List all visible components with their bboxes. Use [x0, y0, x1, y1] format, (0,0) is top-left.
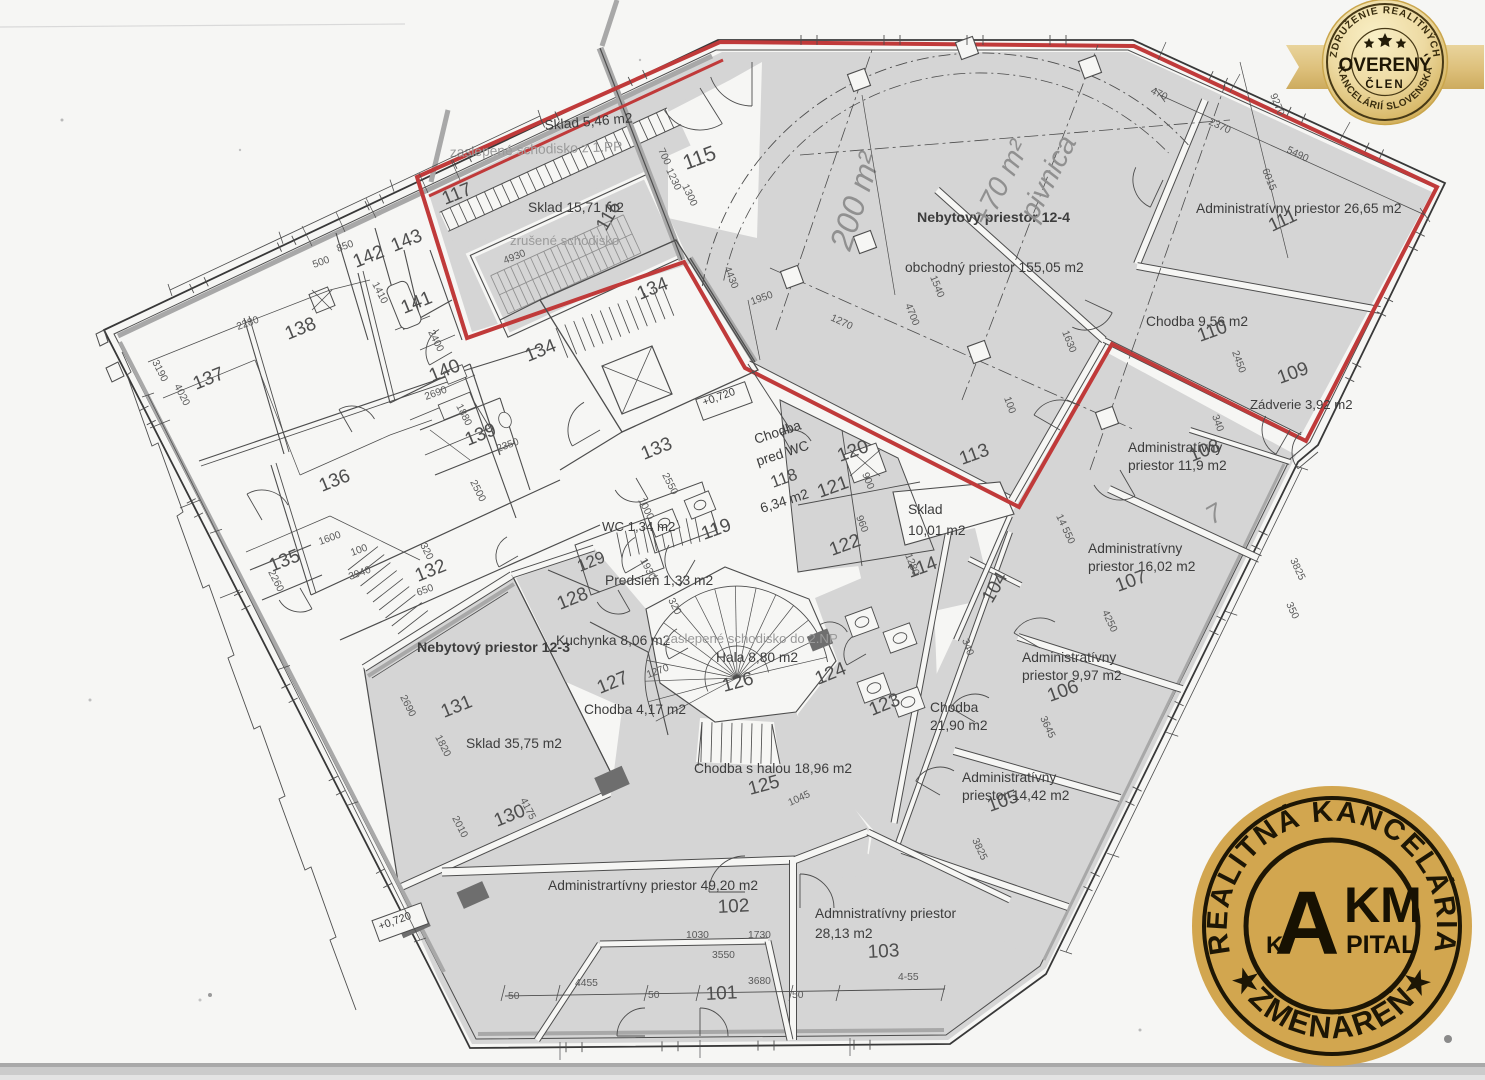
svg-text:Zádverie 3,92 m2: Zádverie 3,92 m2	[1250, 397, 1353, 412]
svg-text:OVERENÝ: OVERENÝ	[1339, 54, 1432, 76]
svg-text:4455: 4455	[575, 978, 598, 989]
svg-text:KM: KM	[1344, 877, 1422, 933]
svg-text:Nebytový priestor 12-3: Nebytový priestor 12-3	[417, 640, 570, 656]
svg-text:3680: 3680	[748, 976, 771, 987]
svg-text:50: 50	[792, 990, 804, 1001]
svg-text:50: 50	[508, 991, 520, 1002]
svg-text:zrušené schodisko: zrušené schodisko	[510, 233, 619, 248]
svg-text:50: 50	[648, 990, 660, 1001]
svg-text:Chodba: Chodba	[930, 700, 979, 715]
svg-text:WC 1,34 m2: WC 1,34 m2	[602, 519, 675, 534]
svg-text:Administratívny priestor 26,65: Administratívny priestor 26,65 m2	[1196, 201, 1402, 216]
svg-text:zaslepené schodisko do 2.NP: zaslepené schodisko do 2.NP	[664, 631, 838, 646]
svg-text:Administrartívny priestor 49,2: Administrartívny priestor 49,20 m2	[548, 878, 758, 893]
svg-text:28,13 m2: 28,13 m2	[815, 926, 873, 941]
svg-text:Administratívny: Administratívny	[1022, 650, 1116, 665]
svg-text:Sklad: Sklad	[908, 502, 943, 517]
svg-text:priestor 11,9 m2: priestor 11,9 m2	[1128, 458, 1227, 473]
svg-text:21,90 m2: 21,90 m2	[930, 718, 988, 733]
svg-text:A: A	[1275, 874, 1340, 974]
svg-text:101: 101	[705, 982, 738, 1005]
svg-text:Hala 8,80 m2: Hala 8,80 m2	[716, 650, 798, 665]
svg-text:Chodba 4,17 m2: Chodba 4,17 m2	[584, 702, 686, 717]
svg-text:PITAL: PITAL	[1346, 931, 1416, 959]
svg-text:Kuchynka 8,06 m2: Kuchynka 8,06 m2	[556, 633, 670, 648]
svg-text:Administratívny: Administratívny	[962, 770, 1056, 785]
svg-text:10,01 m2: 10,01 m2	[908, 523, 966, 538]
svg-text:3550: 3550	[712, 950, 735, 961]
svg-text:ČLEN: ČLEN	[1365, 78, 1404, 91]
svg-text:K: K	[1266, 932, 1284, 959]
svg-text:102: 102	[717, 895, 750, 918]
svg-text:103: 103	[867, 940, 900, 963]
svg-text:Admnistratívny priestor: Admnistratívny priestor	[815, 906, 956, 921]
svg-text:4-55: 4-55	[898, 972, 919, 983]
svg-text:obchodný priestor 155,05 m2: obchodný priestor 155,05 m2	[905, 260, 1084, 275]
svg-text:1730: 1730	[748, 930, 771, 941]
svg-text:Administratívny: Administratívny	[1088, 541, 1182, 556]
svg-text:1030: 1030	[686, 930, 709, 941]
svg-text:Predsieň 1,33 m2: Predsieň 1,33 m2	[605, 573, 713, 588]
svg-text:Sklad 35,75 m2: Sklad 35,75 m2	[466, 736, 562, 751]
